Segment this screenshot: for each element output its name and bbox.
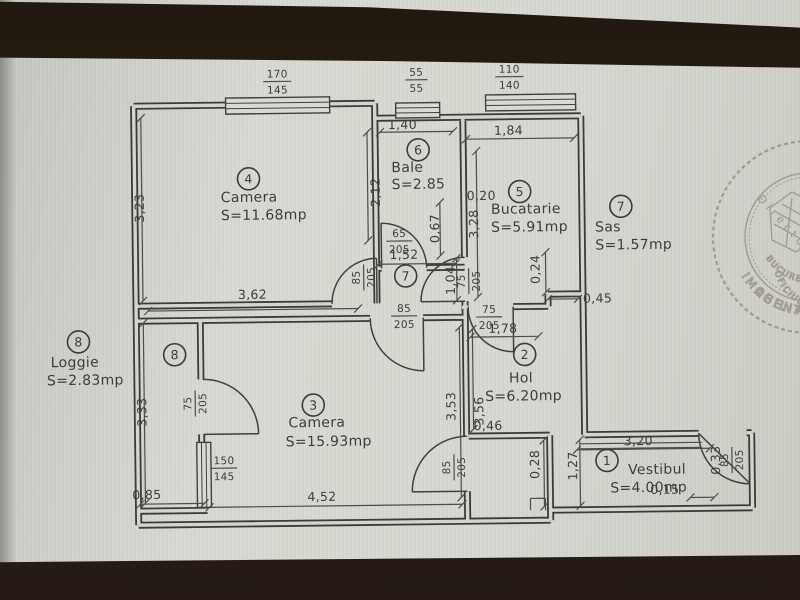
room-badge-vestibul: 1	[596, 449, 618, 471]
door-loggie-width: 75	[182, 397, 194, 411]
dim-camera3-bottom: 4,52	[307, 489, 336, 504]
room-badge-hol: 2	[514, 343, 536, 365]
door-size-bucatarie: 75 205	[456, 268, 483, 294]
dim-camera3-right: 3,53	[443, 392, 458, 421]
room-label-camera4: Camera	[221, 189, 278, 206]
dim-loggie-bottom: 0,85	[132, 487, 161, 502]
room-area-camera4: S=11.68mp	[221, 207, 307, 224]
door-loggie-height: 205	[197, 393, 209, 414]
door-entry-height: 205	[734, 449, 746, 470]
window-baie-width: 55	[409, 67, 423, 79]
door-size-hol: 75 205	[476, 304, 502, 332]
dim-hol-left: 3,56	[471, 396, 486, 425]
room-badge-sas-inside: 7	[395, 265, 417, 287]
door-size-camera3-bottom: 85 205	[441, 454, 468, 480]
room-number-sas-label: 7	[617, 199, 625, 214]
door-hol-width: 75	[482, 304, 496, 316]
window-loggie-height: 145	[214, 471, 235, 483]
window-loggie-width: 150	[213, 455, 234, 467]
plan-group: 4 6 5 7 7 2 3 1	[43, 61, 753, 527]
dim-bucatarie-jog: 0,20	[467, 188, 496, 203]
window-bucatarie-width: 110	[499, 64, 520, 76]
door-size-room4: 85 205	[351, 264, 378, 290]
dim-hol-step: 0,24	[527, 255, 542, 284]
room-number-hol: 2	[520, 347, 528, 362]
window-baie	[396, 103, 440, 119]
room-area-hol: S=6.20mp	[485, 388, 562, 405]
room-area-bucatarie: S=5.91mp	[491, 219, 568, 236]
room-label-baie: Bale	[391, 160, 423, 176]
room-area-loggie: S=2.83mp	[47, 372, 124, 389]
door-hol-height: 205	[479, 320, 500, 332]
room-number-sas-inside: 7	[401, 268, 409, 283]
window-loggie	[197, 442, 212, 507]
dim-vestibul-top: 3,20	[624, 433, 653, 448]
door-camera3-top-height: 205	[394, 319, 415, 331]
dim-room4-left: 3,23	[132, 194, 147, 223]
door-bucatarie-width: 75	[456, 274, 468, 288]
window-room4	[226, 97, 330, 114]
window-room4-width: 170	[267, 68, 288, 80]
room-label-loggie: Loggie	[51, 355, 99, 372]
door-room4-height: 205	[366, 267, 378, 288]
room-label-bucatarie: Bucatarie	[491, 201, 561, 218]
dim-baie-door-side: 0,67	[427, 214, 442, 243]
room-number-vestibul: 1	[603, 453, 611, 468]
room-badge-bucatarie: 5	[509, 180, 531, 202]
window-room4-height: 145	[267, 84, 288, 96]
door-baie-height: 205	[389, 244, 410, 256]
room-badge-baie: 6	[407, 139, 429, 161]
door-camera3-bottom-width: 85	[441, 460, 453, 474]
dim-vestibul-left: 1,27	[565, 451, 580, 480]
room-number-bucatarie: 5	[515, 184, 523, 199]
window-size-loggie: 150 145	[211, 455, 237, 483]
floor-plan-drawing: 4 6 5 7 7 2 3 1	[0, 0, 800, 600]
door-camera3-bottom-height: 205	[456, 457, 468, 478]
room-badge-loggie-label: 8	[67, 331, 89, 353]
window-size-room4: 170 145	[263, 68, 291, 96]
room-number-loggie-inside: 8	[170, 347, 178, 362]
room-number-loggie-label: 8	[74, 334, 82, 349]
window-bucatarie	[486, 94, 576, 111]
door-room4-width: 85	[351, 270, 363, 284]
dimension-ticks	[132, 107, 719, 515]
dim-room4-bottom: 3,62	[238, 287, 267, 302]
window-bucatarie-height: 140	[499, 80, 520, 92]
room-label-hol: Hol	[509, 370, 533, 386]
room-area-sas: S=1.57mp	[595, 237, 672, 254]
window-baie-height: 55	[409, 83, 423, 95]
room-number-camera4: 4	[244, 171, 252, 186]
room-badge-camera3: 3	[302, 394, 324, 416]
dim-room4-right: 2,12	[368, 178, 383, 207]
room-label-sas: Sas	[595, 219, 621, 235]
room-badge-sas-label: 7	[610, 195, 632, 217]
dim-vestibul-offset: 0,28	[527, 450, 542, 479]
dim-hol-right-offset: 0,45	[583, 290, 612, 305]
door-loggie-swing	[203, 379, 259, 435]
dim-entry-offset: 0,15	[650, 482, 679, 497]
room-label-camera3: Camera	[288, 415, 345, 432]
room-badge-camera4: 4	[237, 168, 259, 190]
door-baie-width: 65	[392, 228, 406, 240]
official-round-stamp: AGENTIA NATIONALA IMOBILIARA OFICIUL DE …	[713, 141, 800, 333]
room-area-baie: S=2.85	[391, 176, 445, 193]
room-number-baie: 6	[414, 142, 422, 157]
dim-loggie-left: 3,33	[134, 398, 149, 427]
door-bucatarie-height: 205	[471, 271, 483, 292]
door-camera3-top-width: 85	[397, 303, 411, 315]
door-size-loggie: 75 205	[182, 390, 209, 416]
dim-baie-top: 1,40	[388, 117, 417, 132]
room-area-camera3: S=15.93mp	[286, 433, 372, 450]
photographed-floor-plan: { "document_type": "apartment floor plan…	[0, 0, 800, 600]
dim-bucatarie-left: 3,28	[466, 209, 481, 238]
door-entry-width: 85	[719, 453, 731, 467]
window-size-bucatarie: 110 140	[495, 63, 523, 91]
window-size-baie: 55 55	[405, 67, 427, 95]
room-label-vestibul: Vestibul	[628, 462, 686, 479]
door-size-camera3-top: 85 205	[391, 303, 417, 331]
room-number-camera3: 3	[309, 398, 317, 413]
dim-bucatarie-top: 1,84	[494, 122, 523, 137]
room-badge-loggie-inside: 8	[164, 344, 186, 366]
